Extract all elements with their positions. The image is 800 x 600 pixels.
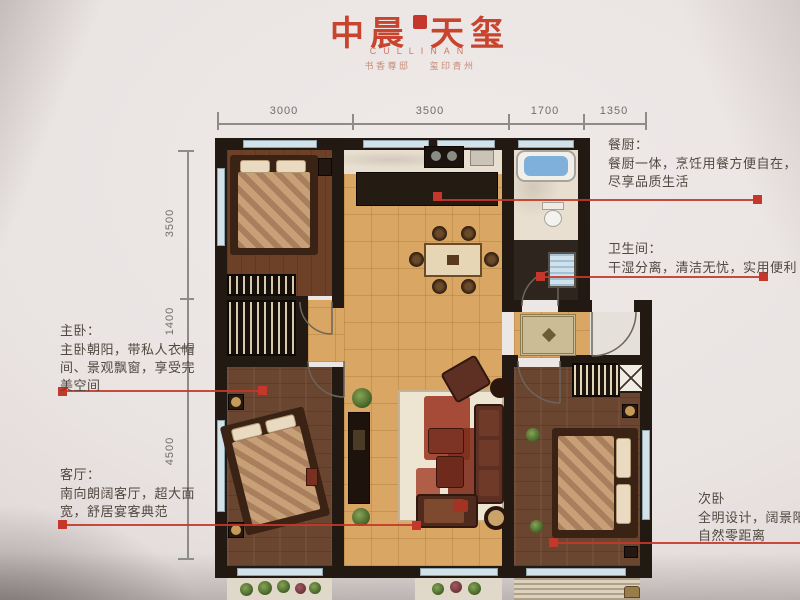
- lamp: [231, 525, 241, 535]
- bathtub-water: [524, 156, 568, 176]
- annotation-master: 主卧： 主卧朝阳，带私人衣帽 间、景观飘窗，享受完 美空间: [60, 322, 210, 395]
- dining-chair: [409, 252, 424, 267]
- annotation-line: 美空间: [60, 377, 210, 395]
- pillow: [240, 160, 270, 173]
- annotation-title: 客厅：: [60, 466, 210, 484]
- plant: [526, 428, 540, 442]
- annotation-kitchen: 餐厨： 餐厨一体，烹饪用餐方便自在， 尽享品质生活: [608, 136, 798, 191]
- balcony-plant: [277, 580, 290, 593]
- balcony-plant: [258, 581, 272, 595]
- sofa-cushion: [479, 410, 499, 436]
- cloakroom-wardrobe: [227, 300, 296, 356]
- nightstand: [318, 158, 332, 176]
- side-table: [490, 378, 510, 398]
- pillow: [616, 438, 631, 478]
- sofa-cushion: [479, 470, 499, 496]
- annotation-line: 南向朗阔客厅，超大面: [60, 485, 210, 503]
- annotation-title: 主卧：: [60, 322, 210, 340]
- balcony-flower: [295, 583, 306, 594]
- tv-cabinet: [348, 412, 370, 504]
- kitchen-leader-line: [440, 199, 757, 201]
- living-leader-line: [64, 524, 418, 526]
- annotation-bathroom: 卫生间： 干湿分离，清洁无忧，实用便利: [608, 240, 798, 277]
- kitchen-marker: [753, 195, 762, 204]
- balcony-plant: [432, 583, 444, 595]
- annotation-line: 全明设计，阔景阳台: [698, 509, 800, 527]
- annotation-living: 客厅： 南向朗阔客厅，超大面 宽，舒居宴客典范: [60, 466, 210, 521]
- wicker-basket: [624, 586, 640, 598]
- annotation-line: 宽，舒居宴客典范: [60, 503, 210, 521]
- burner: [431, 151, 441, 161]
- toilet-tank: [542, 202, 564, 210]
- tv: [353, 430, 365, 450]
- side-table: [484, 506, 508, 530]
- wardrobe: [227, 274, 296, 296]
- balcony-plant: [468, 582, 481, 595]
- annotation-second-bedroom: 次卧 全明设计，阔景阳台 自然零距离: [698, 490, 800, 545]
- pillow: [616, 484, 631, 524]
- bed-duvet: [238, 172, 310, 248]
- balcony-plant: [309, 582, 321, 594]
- balcony-plant: [240, 583, 253, 596]
- table-centerpiece: [447, 255, 459, 265]
- coffee-table: [436, 456, 464, 488]
- annotation-line: 间、景观飘窗，享受完: [60, 359, 210, 377]
- burner: [447, 151, 457, 161]
- pillow: [276, 160, 306, 173]
- stool: [306, 468, 318, 486]
- dining-chair: [461, 226, 476, 241]
- balcony-flower: [450, 581, 462, 593]
- bookshelf: [572, 363, 620, 397]
- annotation-title: 卫生间：: [608, 240, 798, 258]
- annotation-title: 餐厨：: [608, 136, 798, 154]
- dining-chair: [461, 279, 476, 294]
- annotation-line: 餐厨一体，烹饪用餐方便自在，: [608, 155, 798, 173]
- nightstand: [624, 546, 638, 558]
- stove: [424, 146, 464, 168]
- lamp: [231, 397, 241, 407]
- master-marker: [258, 386, 267, 395]
- balcony-right: [514, 578, 640, 600]
- dining-chair: [484, 252, 499, 267]
- annotation-title: 次卧: [698, 490, 800, 508]
- living-marker: [412, 521, 421, 530]
- annotation-line: 干湿分离，清洁无忧，实用便利: [608, 259, 798, 277]
- bed-duvet: [558, 436, 614, 530]
- annotation-line: 自然零距离: [698, 527, 800, 545]
- plant: [352, 388, 372, 408]
- red-cushion: [454, 500, 468, 512]
- annotation-line: 尽享品质生活: [608, 173, 798, 191]
- shaft-box: [618, 363, 644, 393]
- toilet-bowl: [544, 210, 562, 227]
- shower: [548, 252, 576, 288]
- sofa-cushion: [479, 440, 499, 466]
- plant: [530, 520, 543, 533]
- dining-chair: [432, 279, 447, 294]
- sink: [470, 150, 494, 166]
- annotation-line: 主卧朝阳，带私人衣帽: [60, 341, 210, 359]
- dining-chair: [432, 226, 447, 241]
- brochure-photo: 中晨天玺 CULLINAN 书香尊邸 玺印青州 3000 3500 1700 1…: [0, 0, 800, 600]
- lamp: [625, 406, 635, 416]
- coffee-table: [428, 428, 464, 454]
